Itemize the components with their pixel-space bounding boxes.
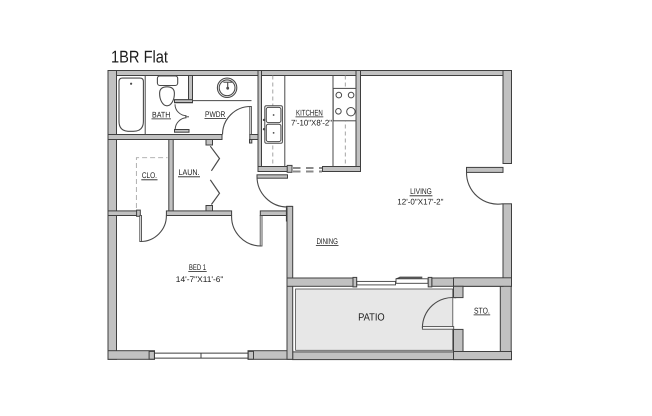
svg-text:7'-10"X8'-2": 7'-10"X8'-2": [291, 118, 332, 127]
svg-text:STO.: STO.: [474, 306, 490, 316]
svg-text:BED 1: BED 1: [189, 263, 207, 272]
svg-text:1BR Flat: 1BR Flat: [111, 48, 168, 67]
svg-text:PATIO: PATIO: [358, 313, 385, 324]
svg-text:LIVING: LIVING: [410, 187, 432, 196]
svg-text:PWDR: PWDR: [205, 110, 225, 119]
svg-text:CLO.: CLO.: [142, 171, 157, 180]
svg-text:14'-7"X11'-6": 14'-7"X11'-6": [176, 275, 224, 284]
svg-text:12'-0"X17'-2": 12'-0"X17'-2": [397, 197, 443, 206]
svg-text:BATH: BATH: [152, 110, 170, 119]
svg-text:DINING: DINING: [316, 237, 338, 246]
svg-text:KITCHEN: KITCHEN: [296, 108, 323, 117]
svg-text:LAUN.: LAUN.: [179, 168, 200, 177]
